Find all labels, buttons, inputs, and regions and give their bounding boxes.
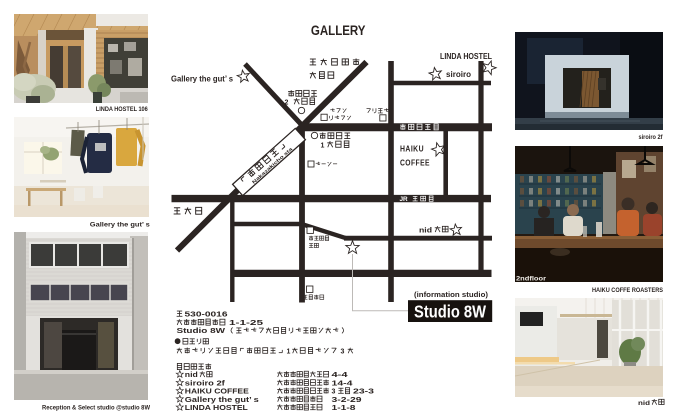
svg-text:GALLERY: GALLERY: [311, 23, 366, 39]
svg-text:3: 3: [341, 348, 345, 355]
svg-text:Reception & Select studio @stu: Reception & Select studio @studio 8W: [42, 405, 151, 412]
svg-text:HAIKU: HAIKU: [400, 145, 424, 154]
svg-text:JR: JR: [400, 196, 409, 203]
svg-text:530-0016: 530-0016: [185, 311, 228, 318]
svg-text:LINDA HOSTEL 106: LINDA HOSTEL 106: [96, 106, 148, 113]
svg-text:nid: nid: [638, 400, 650, 407]
svg-text:Studio 8W: Studio 8W: [414, 301, 486, 321]
svg-text:1: 1: [287, 348, 291, 355]
svg-text:2: 2: [285, 100, 289, 107]
svg-text:Gallery the gut’ s: Gallery the gut’ s: [90, 222, 150, 229]
svg-text:Gallery the gut’ s: Gallery the gut’ s: [171, 75, 234, 84]
svg-text:HAIKU COFFEE: HAIKU COFFEE: [185, 389, 249, 396]
svg-text:nid: nid: [185, 372, 198, 379]
svg-text:Gallery the gut’ s: Gallery the gut’ s: [185, 397, 259, 404]
svg-text:HAIKU COFFE ROASTERS: HAIKU COFFE ROASTERS: [592, 287, 663, 294]
svg-text:siroiro 2f: siroiro 2f: [639, 134, 664, 141]
svg-text:1: 1: [321, 142, 325, 149]
svg-text:23-3: 23-3: [353, 389, 374, 396]
svg-text:4-4: 4-4: [332, 372, 348, 379]
svg-text:siroiro 2f: siroiro 2f: [185, 380, 226, 387]
svg-text:LINDA HOSTEL: LINDA HOSTEL: [440, 52, 492, 61]
svg-text:3-2-29: 3-2-29: [332, 397, 362, 404]
svg-text:Studio 8W: Studio 8W: [177, 328, 226, 335]
svg-text:siroiro: siroiro: [446, 70, 471, 79]
svg-text:3: 3: [332, 389, 336, 396]
svg-text:1-1-8: 1-1-8: [332, 405, 356, 412]
svg-text:COFFEE: COFFEE: [400, 159, 430, 168]
svg-text:14-4: 14-4: [332, 380, 353, 387]
svg-text:LINDA HOSTEL: LINDA HOSTEL: [185, 405, 249, 412]
svg-text:(information studio): (information studio): [414, 290, 489, 299]
svg-text:nid: nid: [419, 226, 432, 235]
svg-text:1-1-25: 1-1-25: [229, 320, 263, 327]
svg-text:2ndfloor: 2ndfloor: [516, 276, 546, 283]
